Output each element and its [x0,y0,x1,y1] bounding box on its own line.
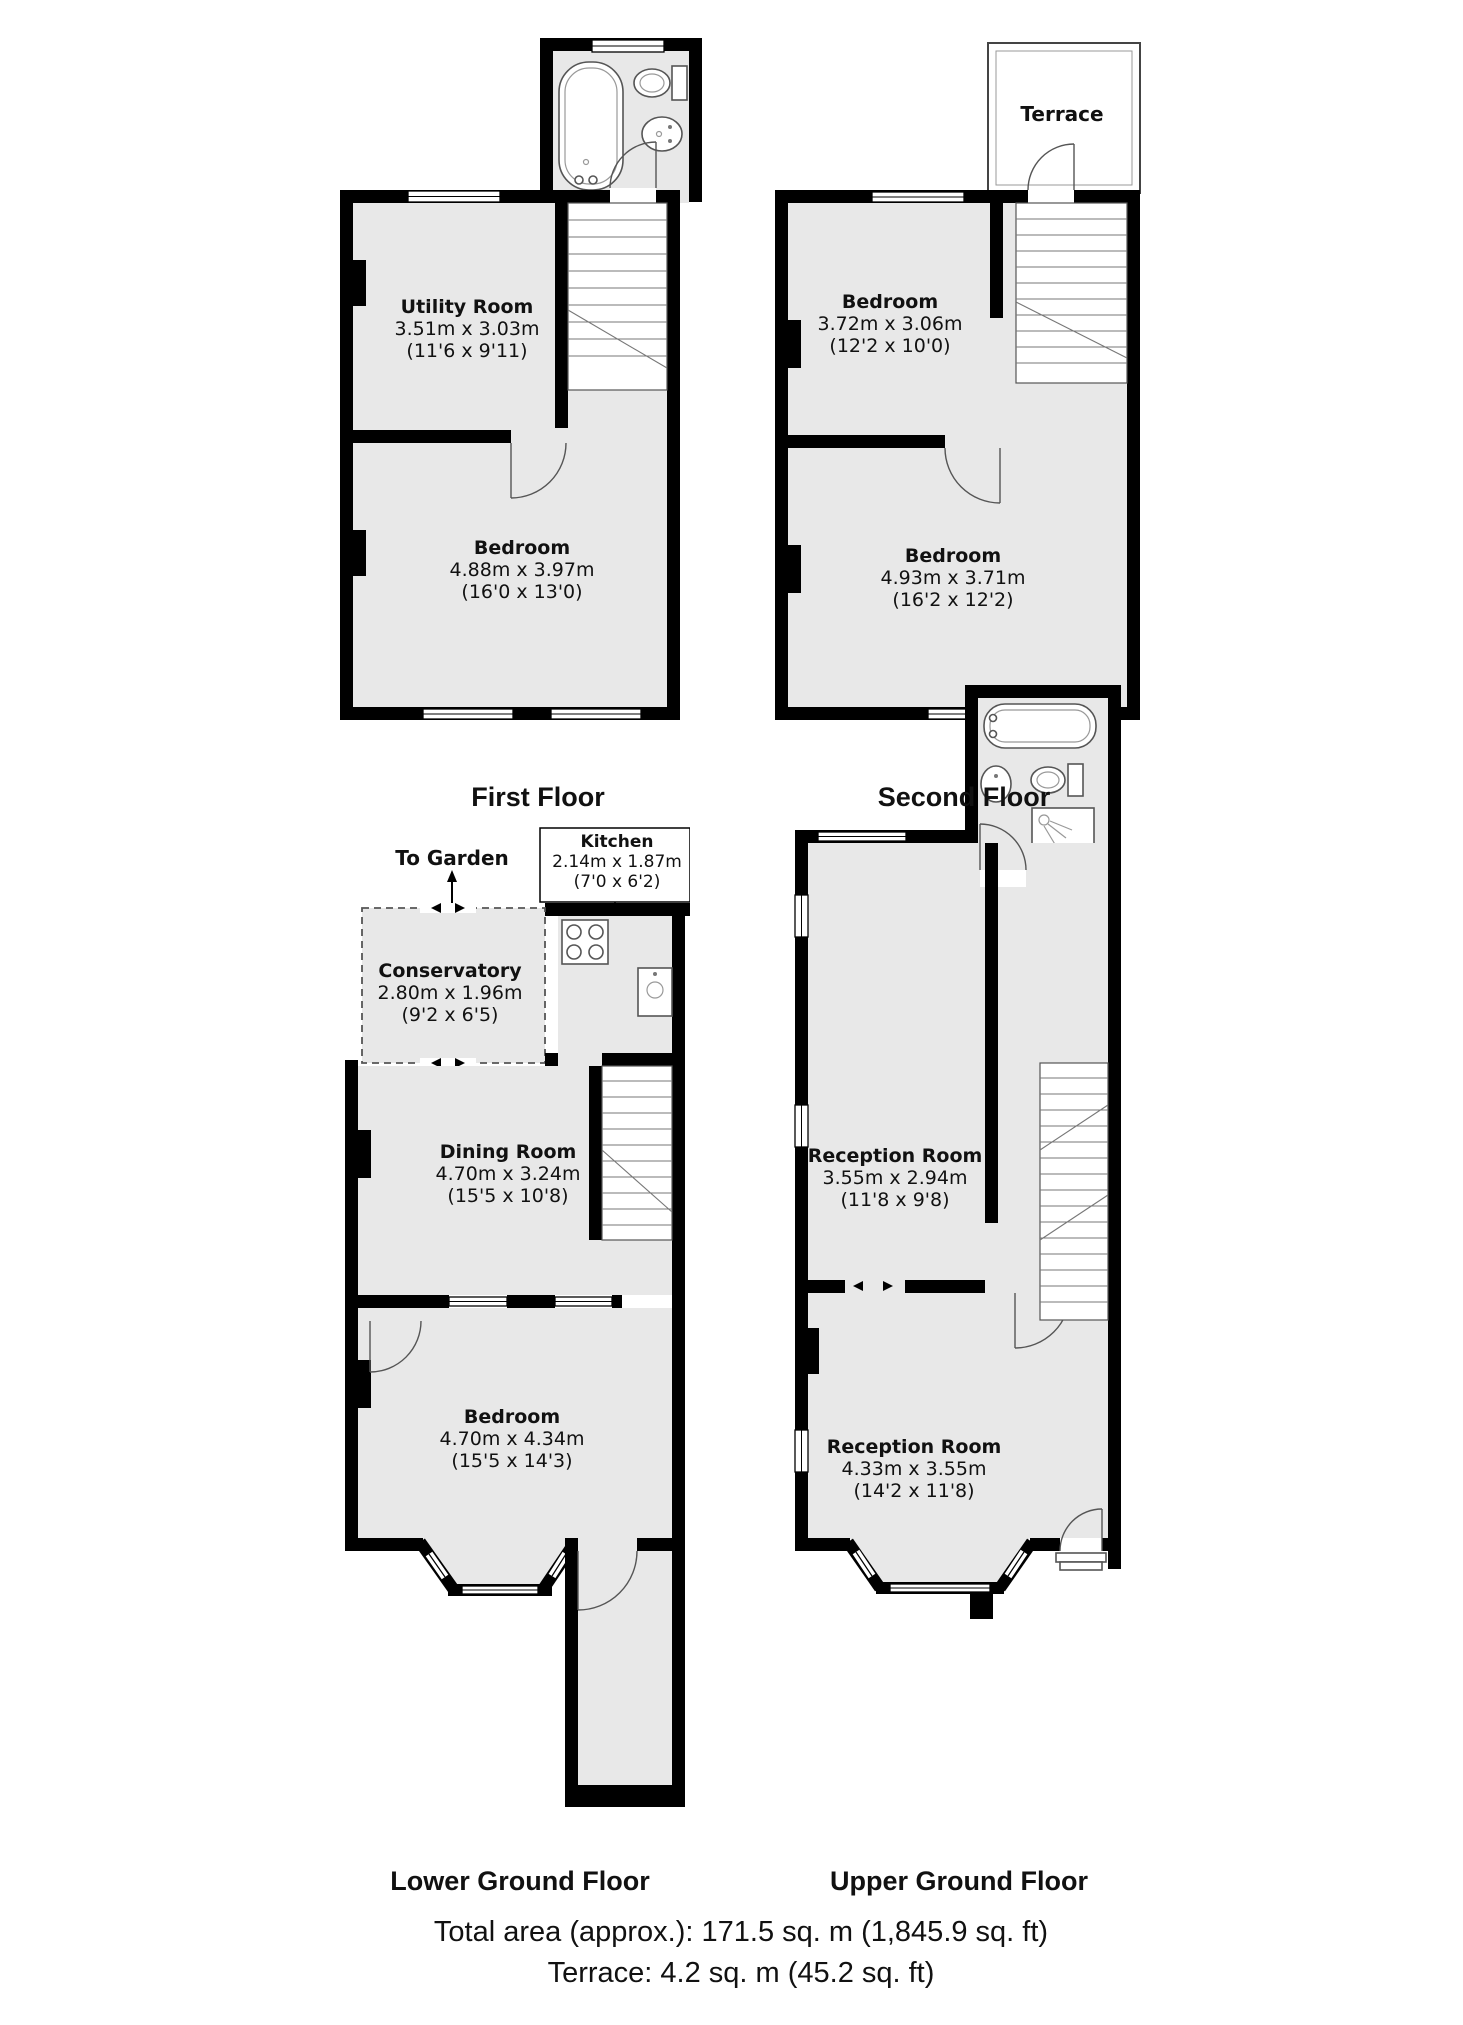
first-floor-plan [330,30,710,730]
room-size-metric: 4.70m x 3.24m [436,1163,581,1185]
floorplan-page: Terrace Utility Room 3.51m x 3.03m (11'6… [0,0,1463,2025]
room-size-metric: 3.51m x 3.03m [395,318,540,340]
corridor-floor [578,1538,672,1785]
chimney-breast [340,260,366,306]
chimney-breast [345,1130,371,1178]
room-label-lg-bedroom: Bedroom 4.70m x 4.34m (15'5 x 14'3) [440,1406,585,1472]
room-name: Reception Room [827,1436,1002,1458]
second-floor-title: Second Floor [878,782,1051,813]
internal-wall [985,843,998,1223]
room-size-metric: 3.55m x 2.94m [808,1167,983,1189]
second-floor-plan [760,40,1155,750]
room-size-imperial: (14'2 x 11'8) [827,1480,1002,1502]
room-name: Bedroom [440,1406,585,1428]
room-size-metric: 2.80m x 1.96m [378,982,523,1004]
room-label-reception-back: Reception Room 4.33m x 3.55m (14'2 x 11'… [827,1436,1002,1502]
room-name: Bedroom [450,537,595,559]
room-size-imperial: (12'2 x 10'0) [818,335,963,357]
upper-ground-floor-title: Upper Ground Floor [830,1866,1088,1897]
internal-wall [788,435,945,448]
chimney-breast [775,320,801,368]
internal-wall [589,1066,602,1240]
room-label-reception-front: Reception Room 3.55m x 2.94m (11'8 x 9'8… [808,1145,983,1211]
room-name: Reception Room [808,1145,983,1167]
kitchen-sink-icon [638,968,672,1016]
staircase [602,1066,672,1240]
staircase [1040,1063,1108,1320]
first-floor-title: First Floor [471,782,605,813]
terrace-area-text: Terrace: 4.2 sq. m (45.2 sq. ft) [548,1957,935,1990]
room-label-sf-bedroom-front: Bedroom 3.72m x 3.06m (12'2 x 10'0) [818,291,963,357]
room-size-imperial: (15'5 x 10'8) [436,1185,581,1207]
room-size-metric: 4.33m x 3.55m [827,1458,1002,1480]
internal-wall [353,430,511,443]
room-size-imperial: (16'0 x 13'0) [450,581,595,603]
bathroom [540,38,702,203]
room-size-imperial: (7'0 x 6'2) [552,872,682,892]
to-garden-arrow-icon [447,870,457,908]
room-size-metric: 4.70m x 4.34m [440,1428,585,1450]
room-size-metric: 4.88m x 3.97m [450,559,595,581]
room-label-ff-bedroom: Bedroom 4.88m x 3.97m (16'0 x 13'0) [450,537,595,603]
to-garden-label: To Garden [395,846,509,870]
terrace-label: Terrace [1020,102,1103,126]
room-label-sf-bedroom-back: Bedroom 4.93m x 3.71m (16'2 x 12'2) [881,545,1026,611]
room-name: Dining Room [436,1141,581,1163]
chimney-breast [795,1328,819,1374]
stove-icon [562,920,608,964]
total-area-text: Total area (approx.): 171.5 sq. m (1,845… [434,1916,1048,1949]
sink-icon [642,117,682,151]
room-size-imperial: (15'5 x 14'3) [440,1450,585,1472]
room-name: Utility Room [395,296,540,318]
staircase [1016,203,1127,383]
room-size-imperial: (16'2 x 12'2) [881,589,1026,611]
internal-wall [990,190,1003,318]
room-label-dining: Dining Room 4.70m x 3.24m (15'5 x 10'8) [436,1141,581,1207]
room-size-metric: 2.14m x 1.87m [552,852,682,872]
sliding-door-arrows-icon [420,903,476,913]
room-size-metric: 4.93m x 3.71m [881,567,1026,589]
room-size-metric: 3.72m x 3.06m [818,313,963,335]
room-name: Conservatory [378,960,523,982]
room-name: Kitchen [552,832,682,852]
wall-stub [970,1594,993,1619]
room-name: Bedroom [818,291,963,313]
staircase [568,203,667,390]
room-name: Bedroom [881,545,1026,567]
room-label-kitchen: Kitchen 2.14m x 1.87m (7'0 x 6'2) [552,832,682,892]
toilet-icon [634,66,687,100]
lower-ground-floor-title: Lower Ground Floor [390,1866,649,1897]
bathtub-icon [984,704,1096,748]
chimney-breast [340,530,366,576]
room-size-imperial: (11'8 x 9'8) [808,1189,983,1211]
room-size-imperial: (9'2 x 6'5) [378,1004,523,1026]
internal-wall [555,203,568,428]
room-size-imperial: (11'6 x 9'11) [395,340,540,362]
room-label-utility: Utility Room 3.51m x 3.03m (11'6 x 9'11) [395,296,540,362]
chimney-breast [345,1360,371,1408]
chimney-breast [775,545,801,593]
room-label-conservatory: Conservatory 2.80m x 1.96m (9'2 x 6'5) [378,960,523,1026]
